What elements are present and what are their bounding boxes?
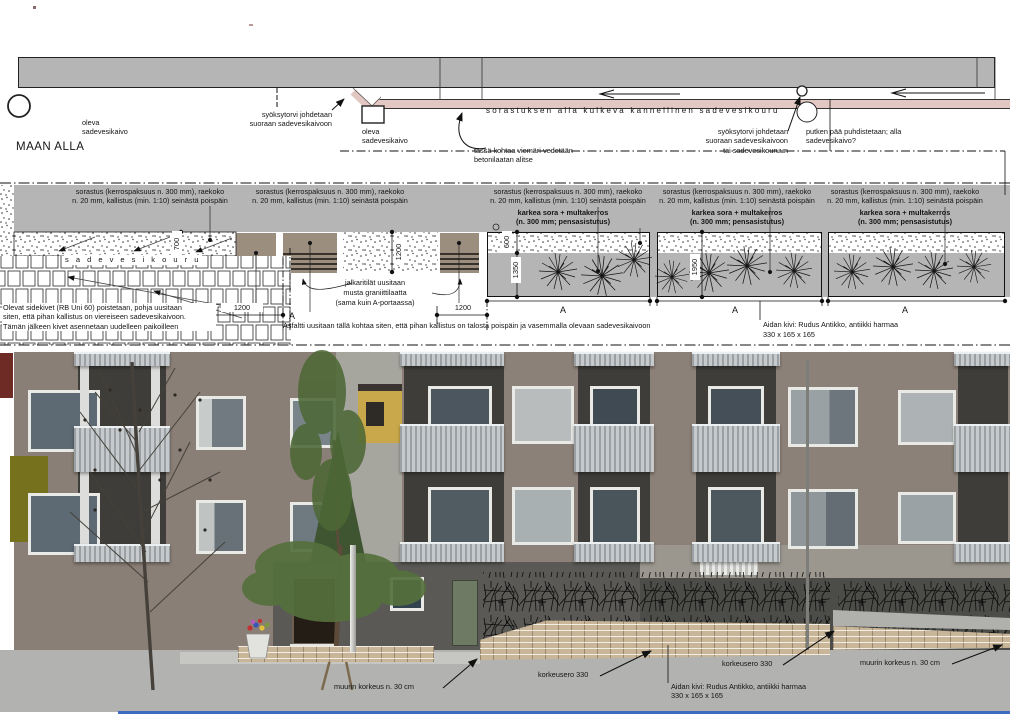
note-asphalt: Asfaltti uusitaan tällä kohtaa siten, et… xyxy=(283,321,723,330)
note-sorastus-5: sorastus (kerrospaksuus n. 300 mm), raek… xyxy=(810,187,1000,206)
note-pipe-end: putken pää puhdistetaan; alla sadevesika… xyxy=(806,127,901,146)
label-maan-alla: MAAN ALLA xyxy=(16,140,84,155)
granite-slab-1 xyxy=(236,233,276,273)
note-sorastus-3: sorastus (kerrospaksuus n. 300 mm), raek… xyxy=(473,187,663,206)
lamp-post xyxy=(806,360,809,650)
balcony-balustrade xyxy=(954,542,1010,562)
label-wall-height-right: muurin korkeus n. 30 cm xyxy=(860,658,970,667)
note-foot-grilles: jalkaritilät uusitaan xyxy=(300,278,450,287)
window-curtained xyxy=(512,386,574,444)
balcony-balustrade xyxy=(74,544,170,562)
window xyxy=(196,500,246,554)
window-pane xyxy=(393,580,421,608)
balcony-balustrade xyxy=(954,352,1010,366)
granite-slab-3 xyxy=(440,233,479,253)
window-curtained xyxy=(512,487,574,545)
label-level-diff-left: korkeusero 330 xyxy=(538,670,618,679)
window xyxy=(898,390,956,445)
section-label-a-4: A xyxy=(899,305,911,317)
balcony-balustrade xyxy=(400,352,504,366)
balcony-balustrade xyxy=(692,424,780,472)
window-wide xyxy=(788,489,858,549)
stray-mark xyxy=(33,6,36,9)
label-fence-stone-photo: Aidan kivi: Rudus Antikko, antiikki harm… xyxy=(671,682,851,701)
window xyxy=(290,398,336,448)
ground-floor-window xyxy=(390,577,424,611)
label-level-diff-right: korkeusero 330 xyxy=(722,659,802,668)
dim-1200-left: 1200 xyxy=(221,303,263,312)
note-downpipe-left: syöksytorvi johdetaan suoraan sadevesika… xyxy=(220,110,332,129)
brick-wall-left xyxy=(238,646,434,662)
note-sorastus-1: sorastus (kerrospaksuus n. 300 mm), raek… xyxy=(55,187,245,206)
balcony-balustrade xyxy=(574,424,654,472)
section-label-a-3: A xyxy=(729,305,741,317)
note-karkea-2: karkea sora + multakerros (n. 300 mm; pe… xyxy=(652,208,822,227)
note-downpipe-right: syöksytorvi johdetaan suoraan sadevesika… xyxy=(664,127,788,155)
dim-1350: 1350 xyxy=(511,257,521,283)
label-existing-drain-left: oleva sadevesikaivo xyxy=(82,118,128,137)
dim-700: 700 xyxy=(172,231,182,257)
balcony-balustrade xyxy=(74,426,170,472)
flow-arrows xyxy=(600,89,985,98)
section-label-a-1: A xyxy=(286,311,298,323)
window xyxy=(898,492,956,544)
label-existing-drain-mid: oleva sadevesikaivo xyxy=(362,127,408,146)
note-pavers: Olevat sidekivet (RB Uni 60) poistetaan,… xyxy=(2,303,216,331)
note-karkea-3: karkea sora + multakerros (n. 300 mm; pe… xyxy=(820,208,990,227)
stray-mark xyxy=(249,24,253,26)
blue-rule xyxy=(118,711,1010,714)
drawing-sheet: MAAN ALLA oleva sadevesikaivo syöksytorv… xyxy=(0,0,1010,723)
downpipe-bend xyxy=(353,88,381,110)
window xyxy=(196,396,246,450)
dim-1200-right: 1200 xyxy=(442,303,484,312)
planting-bed-3 xyxy=(828,232,1005,297)
entrance-door xyxy=(292,577,337,645)
note-sewer-under-slab: tässä kohtaa viemäri vedetään betonilaat… xyxy=(474,146,573,165)
foot-grille-2 xyxy=(440,253,479,273)
building-wall-plan-band xyxy=(18,57,995,88)
note-granite: musta graniittilaatta xyxy=(300,288,450,297)
window xyxy=(290,502,336,552)
balcony-balustrade xyxy=(954,424,1010,472)
balcony-balustrade xyxy=(692,352,780,366)
dim-600: 600 xyxy=(502,231,512,253)
note-fence-stone-size: 330 x 165 x 165 xyxy=(763,330,863,339)
note-sorastus-4: sorastus (kerrospaksuus n. 300 mm), raek… xyxy=(642,187,832,206)
note-granite-2: (sama kuin A-portaassa) xyxy=(300,298,450,307)
note-fence-stone: Aidan kivi: Rudus Antikko, antiikki harm… xyxy=(763,320,963,329)
granite-slab-2 xyxy=(283,233,337,253)
planting-bed-2 xyxy=(657,232,822,297)
note-sorastus-2: sorastus (kerrospaksuus n. 300 mm), raek… xyxy=(235,187,425,206)
note-karkea-1: karkea sora + multakerros (n. 300 mm; pe… xyxy=(478,208,648,227)
balcony-balustrade xyxy=(400,424,504,472)
title-covered-rain-channel: sorastuksen alla kulkeva kannellinen sad… xyxy=(486,106,780,116)
balcony-balustrade xyxy=(574,352,654,366)
green-side-door xyxy=(452,580,478,646)
section-label-a-2: A xyxy=(557,305,569,317)
balcony-balustrade xyxy=(74,352,170,366)
balcony-balustrade xyxy=(400,542,504,562)
label-wall-height-left: muurin korkeus n. 30 cm xyxy=(334,682,444,691)
balcony-door-window xyxy=(708,487,764,549)
yellow-house-window xyxy=(366,402,384,426)
dim-1200-v: 1200 xyxy=(394,239,404,265)
light-pole xyxy=(350,545,356,652)
balcony-balustrade xyxy=(574,542,654,562)
dim-1950: 1950 xyxy=(690,254,700,280)
balcony-balustrade xyxy=(692,542,780,562)
window-wide xyxy=(788,387,858,447)
foot-grille-1 xyxy=(283,253,337,273)
photo-edge-sliver xyxy=(0,353,13,398)
